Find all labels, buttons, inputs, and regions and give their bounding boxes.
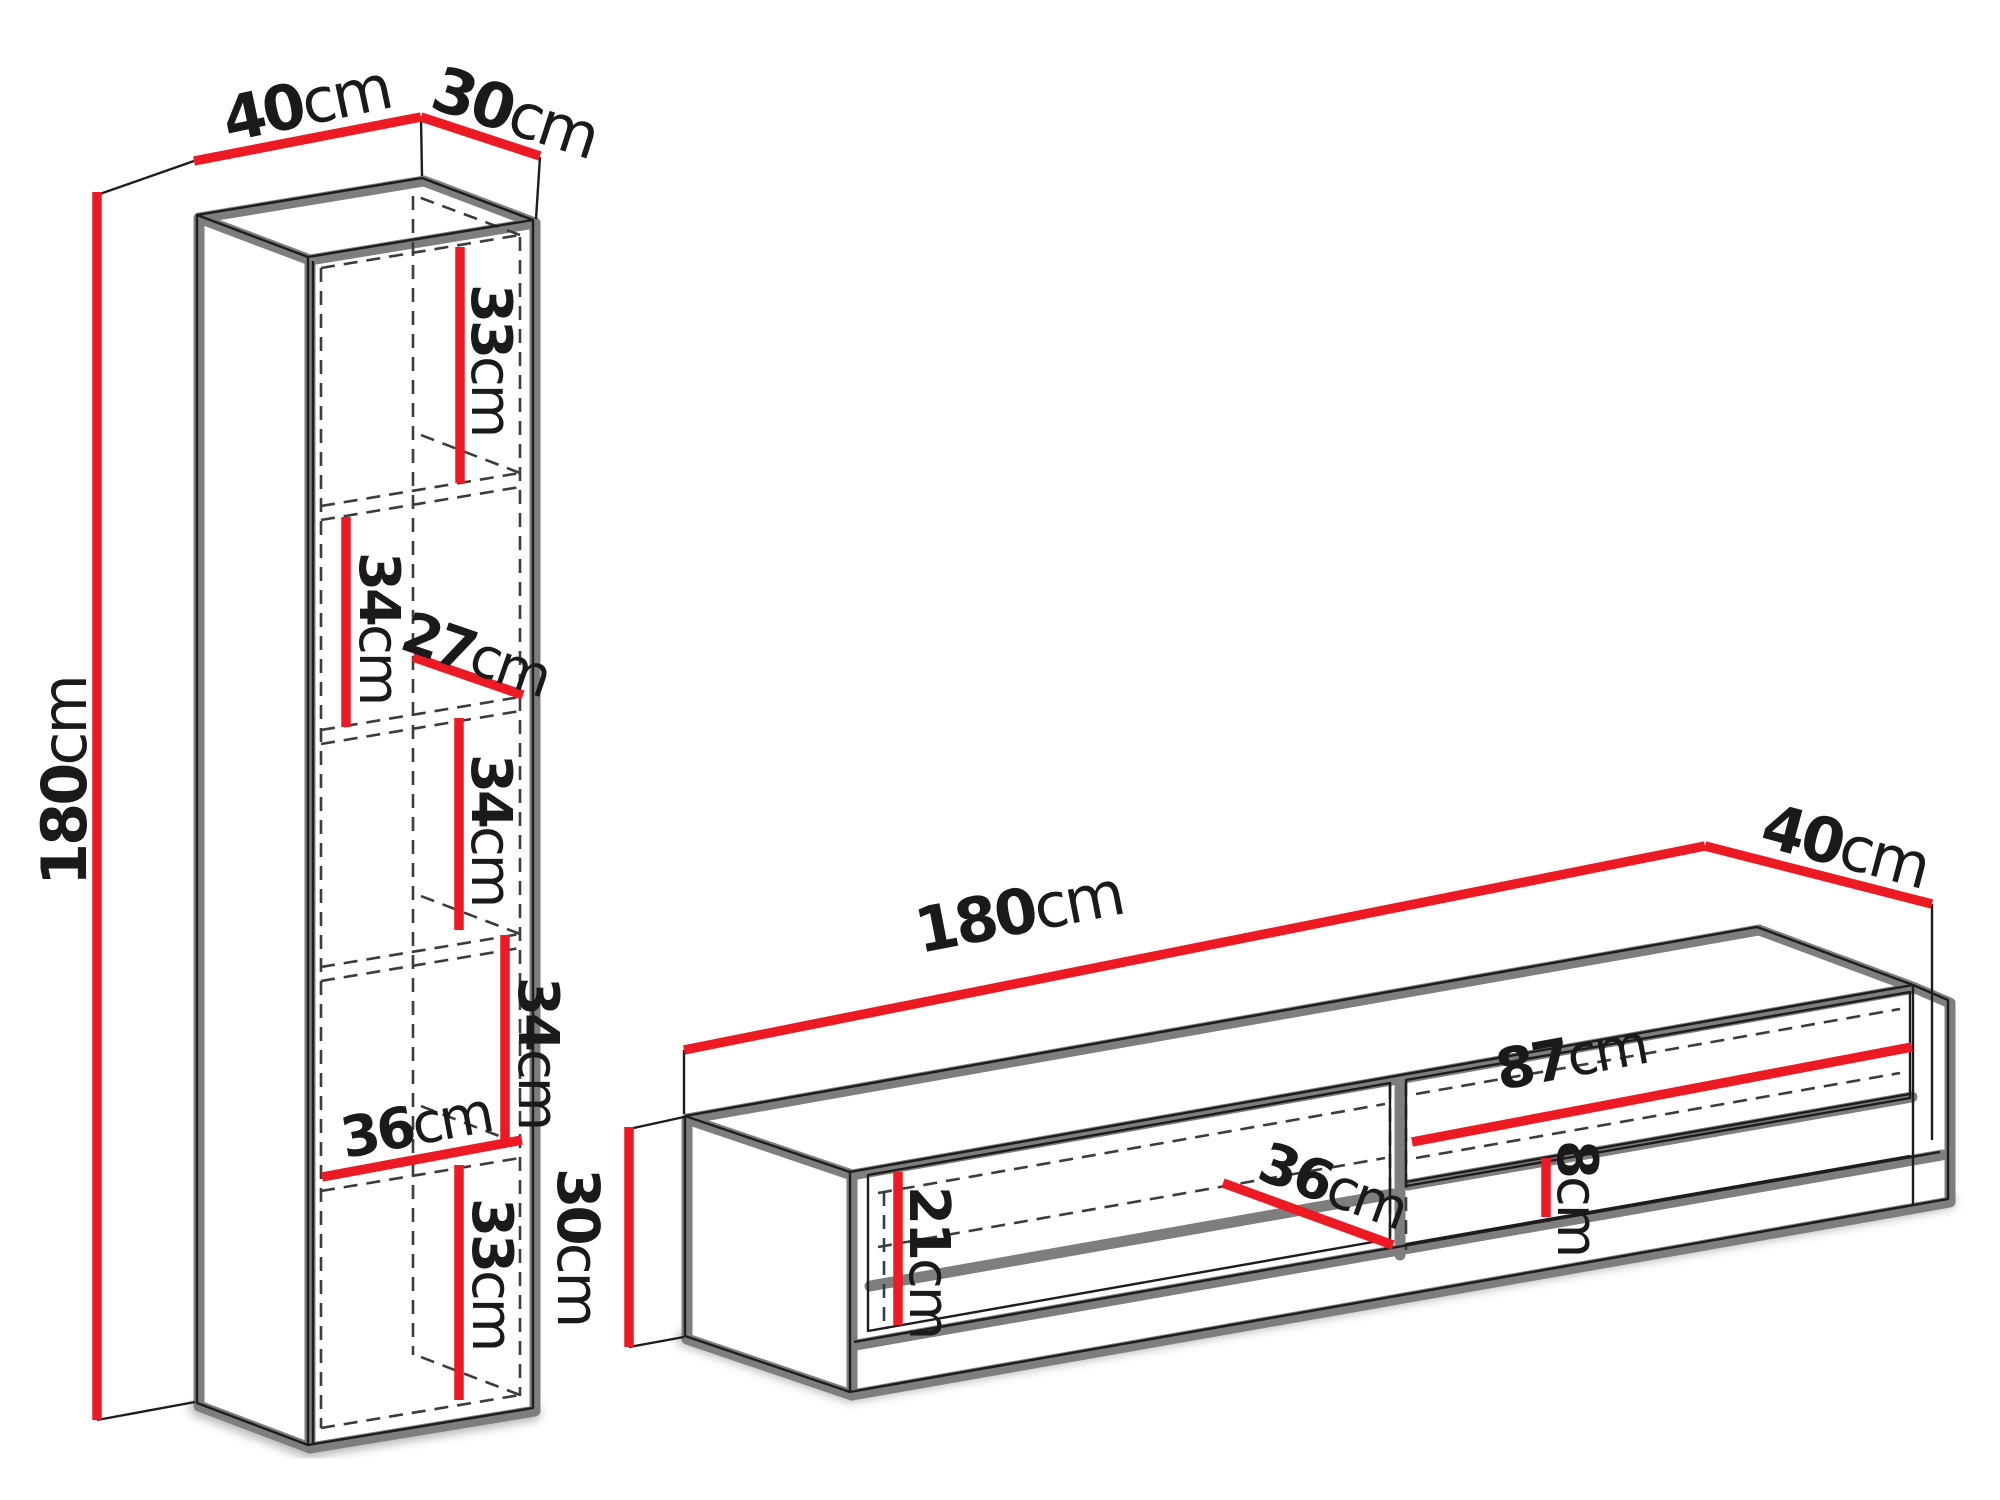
cabinet-compartment5-label: 33cm <box>459 1198 524 1349</box>
tv-stand-width-label: 180cm <box>909 856 1128 968</box>
cabinet-compartment1-label: 33cm <box>458 284 523 435</box>
tv-stand-figure: 180cm 40cm 30cm 21cm 36cm 87cm 8cm <box>544 789 1950 1395</box>
cabinet-compartment2-label: 34cm <box>346 552 411 703</box>
cabinet-height-label: 180cm <box>28 677 101 886</box>
tv-stand-front-height-label: 21cm <box>896 1186 961 1337</box>
cabinet-compartment3-label: 34cm <box>458 754 523 905</box>
cabinet-compartment4-label: 34cm <box>505 977 570 1128</box>
cabinet-depth-label: 30cm <box>423 52 606 174</box>
tv-stand-niche-height-label: 8cm <box>1544 1140 1609 1255</box>
furniture-dimension-diagram: 40cm 30cm 180cm 33cm 34cm 27cm 34cm 34cm… <box>0 0 2000 1500</box>
tv-stand-height-label: 30cm <box>544 1168 612 1325</box>
cabinet-width-label: 40cm <box>216 50 396 156</box>
tall-cabinet-figure: 40cm 30cm 180cm 33cm 34cm 27cm 34cm 34cm… <box>28 50 606 1450</box>
